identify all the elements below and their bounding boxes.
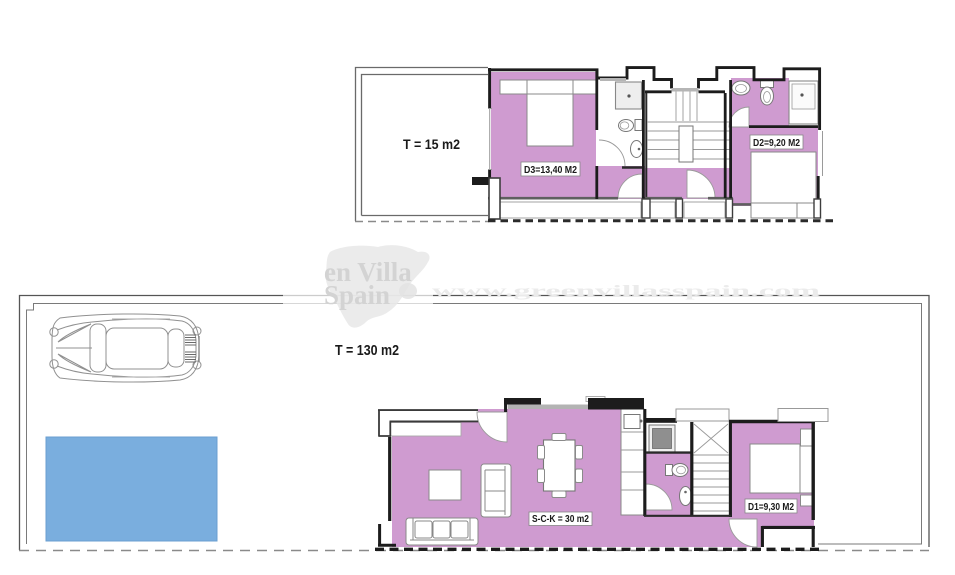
svg-text:www.greenvillasspain.com: www.greenvillasspain.com (432, 283, 821, 300)
svg-text:T = 15 m2: T = 15 m2 (403, 136, 460, 152)
svg-text:D3=13,40 M2: D3=13,40 M2 (524, 164, 577, 176)
svg-text:D2=9,20 M2: D2=9,20 M2 (753, 137, 800, 149)
svg-text:T = 130 m2: T = 130 m2 (335, 343, 399, 359)
svg-text:Spain: Spain (324, 280, 390, 310)
svg-text:S-C-K = 30 m2: S-C-K = 30 m2 (532, 513, 589, 525)
svg-text:D1=9,30 M2: D1=9,30 M2 (748, 501, 794, 513)
